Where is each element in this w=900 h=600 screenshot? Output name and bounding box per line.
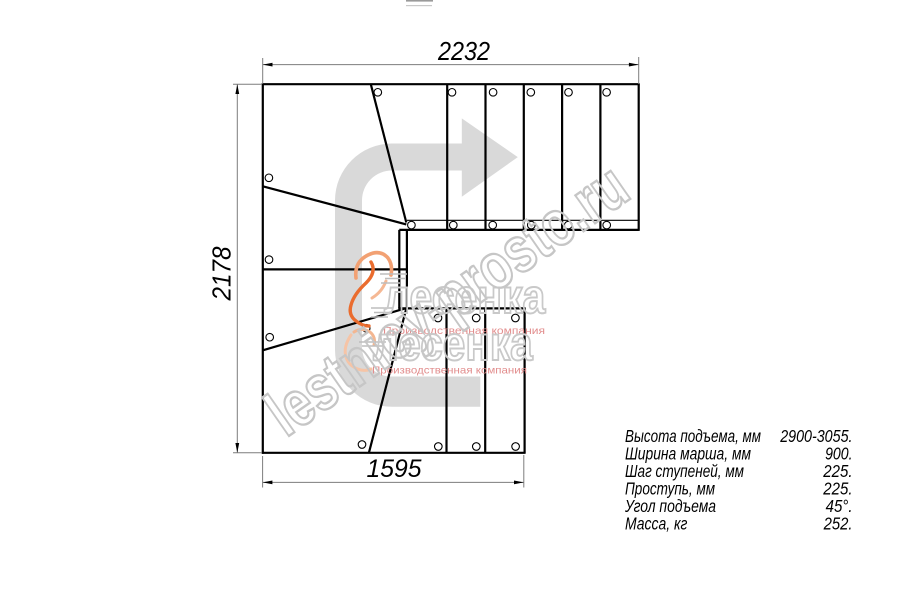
svg-text:252.: 252. — [823, 514, 853, 534]
svg-text:2232: 2232 — [437, 36, 490, 66]
svg-text:2178: 2178 — [207, 246, 237, 301]
svg-text:1595: 1595 — [367, 455, 422, 483]
svg-text:Масса, кг: Масса, кг — [625, 514, 688, 534]
